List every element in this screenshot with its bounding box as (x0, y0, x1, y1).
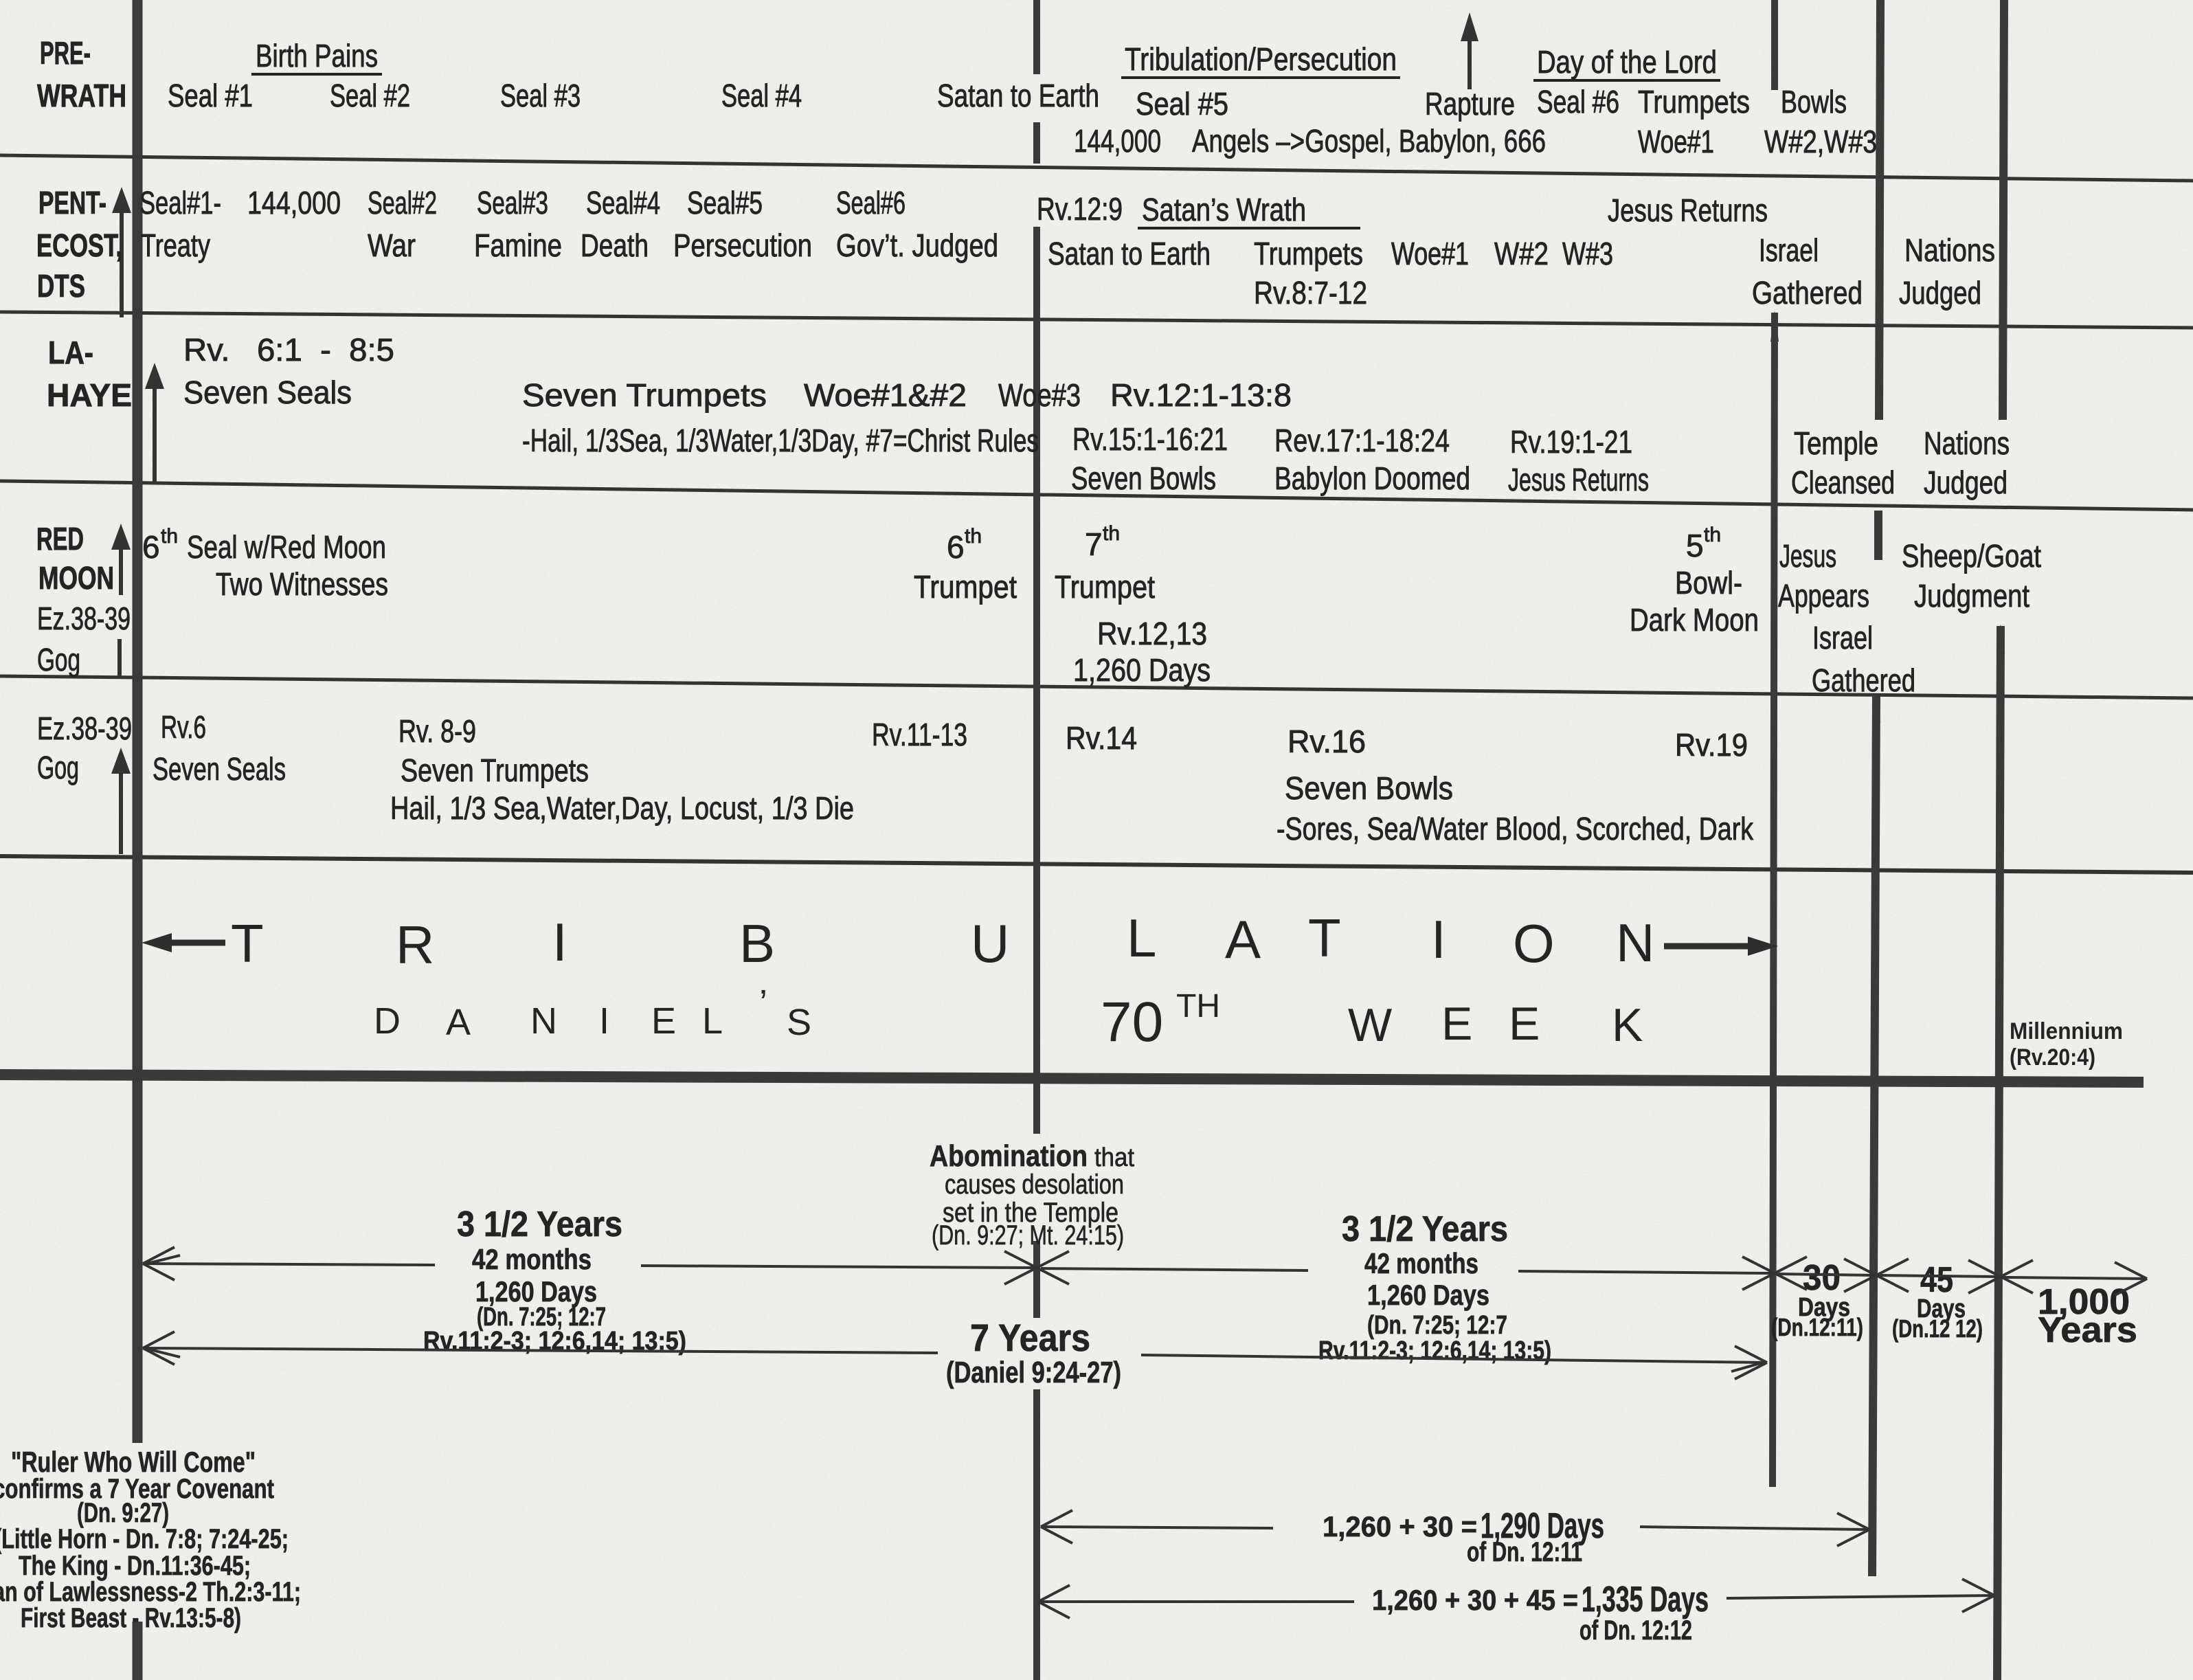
svg-text:"Ruler Who Will Come": "Ruler Who Will Come" (11, 1446, 256, 1478)
svg-text:Rv.15:1-16:21: Rv.15:1-16:21 (1072, 421, 1228, 457)
svg-text:W: W (1348, 999, 1392, 1051)
svg-text:Bowls: Bowls (1781, 84, 1847, 120)
svg-text:Temple: Temple (1794, 425, 1878, 461)
svg-text:Rv.11-13: Rv.11-13 (872, 717, 967, 752)
svg-text:Seven Seals: Seven Seals (183, 374, 352, 410)
svg-text:DTS: DTS (37, 268, 85, 304)
svg-text:A: A (1225, 909, 1261, 970)
svg-text:1,260 + 30 =: 1,260 + 30 = (1323, 1510, 1477, 1543)
svg-text:Woe#1: Woe#1 (1391, 236, 1469, 271)
svg-text:N: N (530, 1000, 557, 1042)
svg-text:Woe#1: Woe#1 (1638, 124, 1714, 159)
svg-text:War: War (368, 227, 416, 263)
svg-text:(Dn.12:11): (Dn.12:11) (1771, 1313, 1863, 1341)
svg-text:(Daniel 9:24-27): (Daniel 9:24-27) (946, 1356, 1121, 1389)
svg-text:Babylon Doomed: Babylon Doomed (1274, 460, 1470, 496)
svg-text:Ez.38-39: Ez.38-39 (37, 710, 132, 746)
svg-text:Rv.19: Rv.19 (1675, 727, 1748, 763)
svg-text:Birth Pains: Birth Pains (256, 38, 378, 74)
svg-text:T: T (1308, 908, 1341, 968)
svg-text:Rv.11:2-3; 12:6,14; 13:5): Rv.11:2-3; 12:6,14; 13:5) (1318, 1336, 1551, 1365)
svg-text:Seal#4: Seal#4 (586, 185, 660, 221)
svg-text:LA-: LA- (48, 335, 93, 370)
svg-text:(Little Horn - Dn. 7:8; 7:24-2: (Little Horn - Dn. 7:8; 7:24-25; (0, 1524, 289, 1554)
svg-text:th: th (161, 525, 178, 548)
svg-text:30: 30 (1803, 1258, 1841, 1298)
svg-text:Seal #2: Seal #2 (330, 78, 410, 113)
svg-text:I: I (1431, 909, 1446, 970)
svg-text:7: 7 (1085, 526, 1103, 562)
svg-text:Rv.12:1-13:8: Rv.12:1-13:8 (1110, 377, 1292, 413)
svg-text:Tribulation/Persecution: Tribulation/Persecution (1125, 41, 1397, 77)
svg-text:Trumpets: Trumpets (1254, 236, 1363, 271)
svg-text:Seal #4: Seal #4 (721, 78, 802, 113)
svg-text:T: T (231, 913, 264, 974)
svg-text:(Dn.12 12): (Dn.12 12) (1892, 1314, 1983, 1343)
svg-text:(Dn. 9:27; Mt. 24:15): (Dn. 9:27; Mt. 24:15) (932, 1220, 1124, 1251)
svg-text:Treaty: Treaty (141, 227, 210, 263)
svg-text:Seal #6: Seal #6 (1537, 84, 1619, 120)
svg-text:of Dn. 12:11: of Dn. 12:11 (1467, 1537, 1582, 1567)
svg-text:Rv.19:1-21: Rv.19:1-21 (1510, 424, 1632, 460)
svg-text:Trumpets: Trumpets (1638, 84, 1750, 120)
svg-text:Cleansed: Cleansed (1791, 464, 1895, 500)
svg-text:Trumpet: Trumpet (1055, 569, 1155, 605)
svg-text:Bowl-: Bowl- (1675, 565, 1742, 601)
svg-text:D: D (374, 1000, 401, 1042)
svg-text:that: that (1094, 1143, 1134, 1172)
svg-text:1,260 + 30 + 45 =: 1,260 + 30 + 45 = (1372, 1584, 1578, 1616)
svg-text:I: I (552, 912, 567, 972)
svg-text:Rv.12:9: Rv.12:9 (1037, 191, 1123, 227)
svg-text:70: 70 (1101, 991, 1163, 1053)
svg-text:6: 6 (142, 529, 160, 565)
svg-text:Seven Trumpets: Seven Trumpets (522, 377, 767, 413)
svg-text:K: K (1612, 999, 1643, 1051)
svg-text:Appears: Appears (1778, 578, 1869, 614)
svg-text:th: th (1704, 524, 1721, 546)
svg-text:HAYE: HAYE (47, 377, 132, 413)
svg-text:S: S (787, 1002, 811, 1043)
svg-text:Israel: Israel (1812, 620, 1873, 656)
svg-text:Gathered: Gathered (1812, 662, 1915, 698)
svg-text:Jesus Returns: Jesus Returns (1508, 462, 1649, 497)
svg-text:of Dn. 12:12: of Dn. 12:12 (1579, 1615, 1692, 1646)
svg-text:Woe#3: Woe#3 (998, 377, 1081, 413)
svg-text:Day of the Lord: Day of the Lord (1537, 44, 1717, 80)
svg-text:Israel: Israel (1759, 232, 1819, 268)
svg-text:PRE-: PRE- (40, 35, 91, 71)
svg-text:Seven Trumpets: Seven Trumpets (401, 752, 589, 788)
svg-text:Gathered: Gathered (1752, 275, 1863, 311)
svg-text:Famine: Famine (474, 227, 562, 263)
svg-text:Nations: Nations (1904, 232, 1995, 268)
svg-text:RED: RED (36, 521, 84, 557)
svg-text:Ez.38-39: Ez.38-39 (37, 601, 131, 636)
svg-text:W#3: W#3 (1562, 236, 1613, 271)
svg-text:Seal#5: Seal#5 (687, 185, 763, 221)
svg-text:Satan to Earth: Satan to Earth (937, 78, 1099, 113)
svg-text:Rv.16: Rv.16 (1287, 724, 1366, 759)
svg-text:Seal#2: Seal#2 (368, 185, 437, 221)
svg-text:1,260 Days: 1,260 Days (1367, 1279, 1489, 1311)
svg-text:PENT-: PENT- (38, 185, 106, 221)
svg-text:-Sores, Sea/Water Blood, Scorc: -Sores, Sea/Water Blood, Scorched, Dark (1277, 811, 1754, 847)
svg-text:N: N (1616, 912, 1654, 973)
svg-text:1,335 Days: 1,335 Days (1582, 1580, 1709, 1620)
svg-text:144,000: 144,000 (1074, 123, 1161, 159)
svg-text:Sheep/Goat: Sheep/Goat (1902, 538, 2041, 574)
svg-text:Gog: Gog (37, 750, 79, 785)
svg-text:TH: TH (1176, 988, 1220, 1024)
svg-text:3 1/2 Years: 3 1/2 Years (1342, 1209, 1508, 1249)
svg-text:Jesus: Jesus (1779, 538, 1836, 574)
svg-text:E: E (651, 1000, 676, 1042)
svg-text:Seal#6: Seal#6 (836, 185, 906, 221)
svg-text:5: 5 (1686, 528, 1704, 563)
svg-text:Rv.14: Rv.14 (1066, 720, 1137, 756)
svg-text:First Beast - Rv.13:5-8): First Beast - Rv.13:5-8) (21, 1603, 241, 1633)
svg-text:Judgment: Judgment (1914, 578, 2029, 614)
svg-text:(Dn. 7:25; 12:7: (Dn. 7:25; 12:7 (1367, 1311, 1507, 1340)
svg-text:Hail, 1/3 Sea,Water,Day, Locus: Hail, 1/3 Sea,Water,Day, Locust, 1/3 Die (390, 790, 854, 826)
svg-text:MOON: MOON (38, 560, 114, 596)
svg-text:Death: Death (581, 227, 649, 263)
svg-text:Rv. 8-9: Rv. 8-9 (398, 713, 476, 749)
svg-text:W#2,W#3: W#2,W#3 (1764, 124, 1877, 159)
svg-text:Rev.17:1-18:24: Rev.17:1-18:24 (1274, 423, 1450, 458)
svg-text:Years: Years (2038, 1310, 2137, 1350)
svg-text:Judged: Judged (1899, 275, 1981, 311)
svg-text:Gog: Gog (37, 642, 80, 677)
svg-text:-Hail, 1/3Sea, 1/3Water,1/3Day: -Hail, 1/3Sea, 1/3Water,1/3Day, #7=Chris… (522, 423, 1039, 458)
svg-text:7 Years: 7 Years (970, 1316, 1090, 1359)
svg-text:Persecution: Persecution (673, 227, 812, 263)
svg-text:Trumpet: Trumpet (914, 569, 1017, 605)
svg-text:Abomination: Abomination (930, 1139, 1088, 1173)
svg-text:Seal#1-: Seal#1- (139, 185, 221, 221)
svg-text:O: O (1513, 913, 1555, 974)
svg-text:Seal #1: Seal #1 (168, 78, 253, 113)
svg-text:(Rv.20:4): (Rv.20:4) (2010, 1044, 2095, 1071)
svg-text:Rapture: Rapture (1425, 86, 1515, 122)
svg-text:Judged: Judged (1924, 464, 2008, 500)
svg-text:Seven Bowls: Seven Bowls (1285, 770, 1453, 806)
svg-text:42 months: 42 months (472, 1243, 592, 1275)
svg-text:Jesus Returns: Jesus Returns (1608, 192, 1768, 228)
svg-text:3 1/2 Years: 3 1/2 Years (457, 1205, 622, 1244)
svg-text:6: 6 (947, 529, 965, 565)
svg-text:B: B (739, 913, 775, 974)
svg-text:E: E (1509, 998, 1540, 1050)
svg-text:Rv.6: Rv.6 (161, 709, 206, 745)
svg-text:W#2: W#2 (1494, 236, 1549, 271)
svg-text:Satan to Earth: Satan to Earth (1048, 236, 1211, 271)
svg-text:ECOST,: ECOST, (36, 227, 122, 263)
svg-text:WRATH: WRATH (37, 78, 126, 113)
svg-text:I: I (599, 1000, 609, 1042)
svg-text:144,000: 144,000 (247, 185, 341, 221)
svg-text:42 months: 42 months (1364, 1247, 1478, 1279)
svg-text:Seal #3: Seal #3 (500, 78, 581, 113)
svg-text:Gov’t. Judged: Gov’t. Judged (836, 227, 998, 263)
svg-text:1,260 Days: 1,260 Days (1073, 652, 1211, 688)
svg-text:Seal#3: Seal#3 (477, 185, 548, 221)
svg-text:’: ’ (759, 983, 767, 1024)
svg-text:Nations: Nations (1924, 425, 2010, 461)
svg-text:Millennium: Millennium (2010, 1018, 2123, 1044)
svg-text:causes desolation: causes desolation (945, 1169, 1124, 1200)
svg-text:Rv. 6:1 - 8:5: Rv. 6:1 - 8:5 (183, 332, 394, 368)
svg-text:th: th (965, 525, 982, 548)
svg-text:Seal #5: Seal #5 (1136, 86, 1228, 122)
svg-text:Rv.12,13: Rv.12,13 (1097, 616, 1207, 651)
svg-text:Seven Seals: Seven Seals (153, 751, 286, 787)
svg-text:Angels –>Gospel, Babylon, 666: Angels –>Gospel, Babylon, 666 (1192, 123, 1546, 159)
svg-text:Dark Moon: Dark Moon (1630, 602, 1759, 638)
svg-text:Two Witnesses: Two Witnesses (216, 566, 388, 602)
svg-text:A: A (446, 1002, 471, 1043)
svg-text:U: U (971, 913, 1009, 974)
svg-text:Satan’s Wrath: Satan’s Wrath (1142, 192, 1306, 227)
svg-text:Seven Bowls: Seven Bowls (1071, 460, 1216, 496)
svg-text:Seal w/Red Moon: Seal w/Red Moon (187, 529, 386, 565)
svg-text:Woe#1&#2: Woe#1&#2 (804, 377, 967, 413)
svg-text:E: E (1441, 998, 1472, 1050)
svg-text:R: R (396, 915, 434, 975)
svg-text:Rv.8:7-12: Rv.8:7-12 (1254, 275, 1367, 311)
svg-text:th: th (1103, 522, 1120, 545)
svg-text:L: L (1127, 908, 1156, 968)
svg-text:L: L (702, 1000, 723, 1042)
